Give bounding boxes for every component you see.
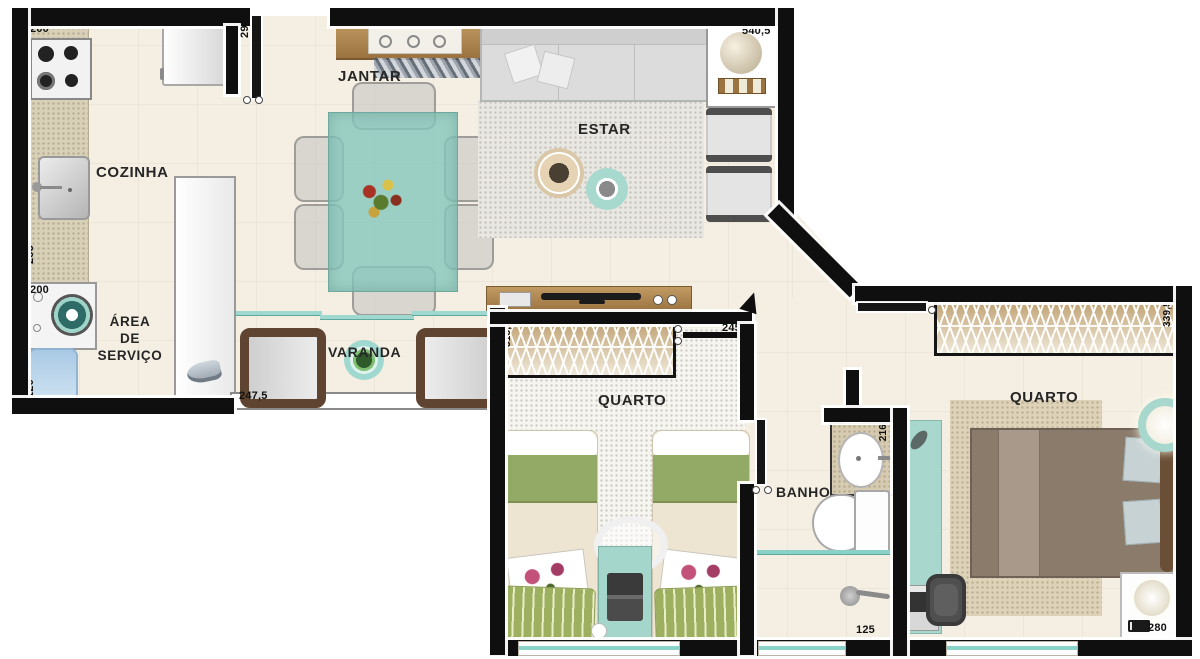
pouf-arm — [706, 166, 772, 173]
burner-icon — [65, 74, 78, 87]
headboard-bolster — [1160, 434, 1174, 572]
knob-icon — [653, 295, 663, 305]
gecko-decor-icon — [908, 427, 930, 452]
bed-roll — [653, 431, 749, 456]
entry-door-leaf — [252, 16, 261, 98]
laptop-icon — [607, 573, 643, 621]
faucet-icon — [878, 456, 892, 460]
bedroom1-door-leaf — [757, 420, 765, 484]
table-lamp-icon — [1134, 580, 1170, 616]
washer-dial-icon — [33, 324, 41, 332]
room-label-quarto2: QUARTO — [1010, 389, 1078, 406]
fridge — [162, 20, 228, 86]
striped-pillow — [502, 585, 596, 644]
door-hinge-icon — [928, 306, 936, 314]
floor-plan: COZINHA 200 253 ÁREA DE SERVIÇO 200 120 … — [0, 0, 1200, 659]
armchair-pouf — [706, 166, 772, 222]
wardrobe-rod — [937, 325, 1177, 327]
faucet-icon — [40, 186, 62, 189]
line-end-icon — [674, 325, 682, 333]
room-label-quarto1: QUARTO — [598, 392, 666, 409]
decor-tray-small — [718, 78, 766, 94]
coffee-table-small — [586, 168, 628, 210]
burner-icon — [38, 46, 54, 62]
bedroom1-wardrobe — [500, 318, 676, 378]
bedroom2-window — [946, 641, 1078, 656]
sink-drain-icon — [856, 456, 861, 461]
office-chair — [926, 574, 966, 626]
wall-bedroom1-left — [490, 308, 505, 655]
dim-quarto2-wardrobe: 339,5 — [1162, 301, 1173, 327]
wall-entry-jamb — [226, 26, 238, 94]
tv-stand-icon — [579, 300, 605, 304]
wall-private-top — [855, 286, 1192, 302]
burner-icon — [37, 72, 55, 90]
single-bed — [500, 430, 598, 646]
dim-hall: 245 — [722, 322, 741, 334]
door-hinge-icon — [243, 96, 251, 104]
armchair-pouf — [706, 108, 772, 162]
door-hinge-icon — [752, 486, 760, 494]
door-hinge-icon — [764, 486, 772, 494]
room-label-area-servico: ÁREA DE SERVIÇO — [92, 313, 168, 364]
wardrobe-rod — [503, 346, 673, 348]
dim-varanda: 247,5 — [239, 390, 268, 402]
varanda-glass-door — [412, 311, 490, 316]
wall-service-bottom — [12, 398, 234, 414]
dim-entry-wall: 290 — [239, 19, 251, 38]
wall-kitchen-top — [12, 8, 250, 26]
sofa-back — [482, 24, 712, 45]
double-bed — [970, 428, 1178, 578]
coffee-table-large — [534, 148, 584, 198]
bedroom1-window — [518, 641, 680, 656]
knob-icon — [665, 293, 679, 307]
stove-cooktop — [30, 38, 92, 100]
kitchen-sink — [38, 156, 90, 220]
wall-bedroom1-right-lower — [740, 484, 754, 655]
bedroom2-door-leaf — [858, 303, 926, 311]
decor-ball-icon — [720, 32, 762, 74]
sofa-pillow — [537, 51, 576, 90]
wall-hall-top — [490, 312, 752, 324]
varanda-glass-door — [236, 311, 322, 316]
toilet-tank — [854, 490, 890, 554]
dim-laundry: 200 — [30, 284, 49, 296]
bed-roll — [501, 431, 597, 456]
dim-estar-cabinet: 540,5 — [742, 25, 771, 37]
varanda-glass-door — [320, 315, 414, 320]
wall-right — [1176, 286, 1192, 656]
room-label-banho: BANHO — [776, 484, 830, 500]
sofa — [480, 22, 714, 102]
remote-icon — [1128, 620, 1150, 632]
area-servico-line2: DE — [92, 330, 168, 347]
tv-icon — [541, 293, 641, 300]
dim-banho-vanity: 216 — [878, 424, 889, 441]
area-servico-line1: ÁREA — [92, 313, 168, 330]
room-label-cozinha: COZINHA — [96, 164, 169, 181]
dim-banho-width: 125 — [856, 624, 875, 636]
study-desk — [598, 546, 652, 646]
decor-dot — [407, 35, 420, 48]
drain-icon — [68, 188, 72, 192]
area-servico-line3: SERVIÇO — [92, 347, 168, 364]
wall-bath-right — [893, 408, 907, 656]
door-hinge-icon — [255, 96, 263, 104]
bed-blanket-green — [501, 455, 597, 503]
striped-pillow — [654, 585, 748, 644]
chair-cushion — [934, 584, 958, 616]
tv-rack — [486, 286, 692, 312]
sofa-seam — [634, 44, 635, 100]
pouf-arm — [706, 215, 772, 222]
burner-icon — [64, 46, 78, 60]
wall-bedroom1-right-upper — [740, 324, 754, 420]
wall-living-top — [330, 8, 794, 26]
decor-dot — [379, 35, 392, 48]
bath-window — [758, 641, 846, 656]
line-end-icon — [674, 337, 682, 345]
pouf-arm — [706, 155, 772, 162]
washer-drum-icon — [51, 294, 93, 336]
decor-dot — [433, 35, 446, 48]
wall-left — [12, 8, 28, 414]
wall-living-right — [778, 8, 794, 216]
dim-quarto2-window: 280 — [1148, 622, 1167, 634]
room-label-varanda: VARANDA — [328, 344, 401, 360]
bed-blanket-green — [653, 455, 749, 503]
mug-icon — [591, 623, 607, 639]
pouf-arm — [706, 108, 772, 115]
table-centerpiece — [352, 170, 410, 224]
bedroom2-wardrobe — [934, 298, 1180, 356]
shower-divider — [756, 550, 893, 555]
room-label-estar: ESTAR — [578, 121, 631, 138]
deco-box — [499, 292, 531, 307]
bed-fold — [998, 430, 1040, 576]
bed-pillow — [1123, 499, 1164, 546]
fridge-handle — [160, 68, 164, 80]
decor-tray — [368, 26, 462, 54]
